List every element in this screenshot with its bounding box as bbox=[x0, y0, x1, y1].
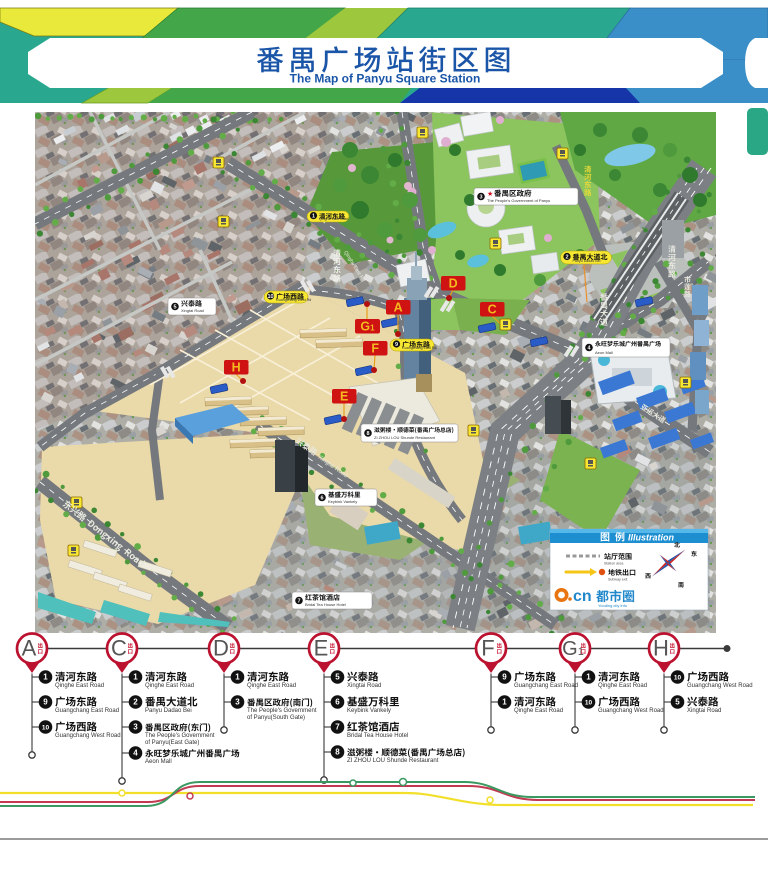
svg-text:Keybink Vankely: Keybink Vankely bbox=[328, 499, 357, 504]
svg-text:3: 3 bbox=[235, 698, 240, 707]
svg-text:Panyu Dadao Bei: Panyu Dadao Bei bbox=[145, 708, 192, 714]
svg-text:Qinghe East Road: Qinghe East Road bbox=[319, 217, 348, 221]
svg-text:Qinghe East Road: Qinghe East Road bbox=[247, 683, 296, 689]
svg-text:A: A bbox=[394, 301, 403, 315]
svg-text:10: 10 bbox=[585, 700, 593, 707]
svg-text:Panyu Dadao Bei: Panyu Dadao Bei bbox=[573, 259, 601, 263]
svg-text:7: 7 bbox=[335, 723, 340, 732]
svg-text:1: 1 bbox=[43, 673, 48, 682]
svg-text:6: 6 bbox=[320, 496, 323, 502]
svg-text:Qinghe East Road: Qinghe East Road bbox=[598, 683, 647, 689]
svg-text:Bridal Tea House Hotel: Bridal Tea House Hotel bbox=[347, 733, 408, 739]
svg-text:Illustration: Illustration bbox=[628, 533, 675, 543]
svg-text:Qinghe East Road: Qinghe East Road bbox=[145, 683, 194, 689]
svg-text:Aeon Mall: Aeon Mall bbox=[145, 759, 172, 765]
svg-text:D: D bbox=[213, 636, 229, 661]
svg-text:Guangchang East Rd: Guangchang East Rd bbox=[402, 346, 436, 350]
svg-text:1: 1 bbox=[133, 673, 138, 682]
svg-text:8: 8 bbox=[335, 748, 340, 757]
svg-text:Aeon Mall: Aeon Mall bbox=[595, 350, 613, 355]
svg-text:9: 9 bbox=[502, 673, 507, 682]
svg-text:10: 10 bbox=[674, 675, 682, 682]
svg-text:C: C bbox=[111, 636, 127, 661]
svg-text:2: 2 bbox=[133, 698, 138, 707]
svg-text:Subway exit: Subway exit bbox=[608, 578, 627, 582]
svg-text:10: 10 bbox=[267, 294, 273, 300]
svg-text:Guangchang West Road: Guangchang West Road bbox=[598, 708, 664, 714]
svg-text:C: C bbox=[488, 303, 497, 317]
svg-text:1: 1 bbox=[235, 673, 240, 682]
svg-text:Guangchang East Road: Guangchang East Road bbox=[55, 708, 119, 714]
svg-text:Guangchang West Road: Guangchang West Road bbox=[687, 683, 753, 689]
svg-text:of Panyu(East Gate): of Panyu(East Gate) bbox=[145, 740, 199, 746]
svg-text:A: A bbox=[22, 636, 37, 661]
svg-text:1: 1 bbox=[502, 698, 507, 707]
svg-text:9: 9 bbox=[43, 698, 48, 707]
svg-text:6: 6 bbox=[335, 698, 340, 707]
svg-text:5: 5 bbox=[173, 305, 176, 311]
svg-text:Xingtai Road: Xingtai Road bbox=[347, 683, 381, 689]
svg-text:Guangchang West Road: Guangchang West Road bbox=[55, 733, 121, 739]
svg-text:F: F bbox=[371, 342, 379, 356]
svg-text:H: H bbox=[232, 361, 241, 375]
svg-text:4: 4 bbox=[133, 749, 138, 758]
svg-text:1: 1 bbox=[586, 673, 591, 682]
svg-text:E: E bbox=[340, 390, 348, 404]
svg-text:The People's Government: The People's Government bbox=[145, 733, 215, 739]
svg-text:F: F bbox=[481, 636, 494, 661]
svg-text:Xingtai Road: Xingtai Road bbox=[687, 708, 721, 714]
svg-text:D: D bbox=[449, 277, 458, 291]
svg-text:1: 1 bbox=[312, 214, 315, 220]
svg-text:7: 7 bbox=[297, 599, 300, 605]
svg-text:10: 10 bbox=[42, 725, 50, 732]
svg-text:of Panyu(South Gate): of Panyu(South Gate) bbox=[247, 715, 305, 721]
svg-text:The People's Government of Pan: The People's Government of Panyu bbox=[487, 198, 550, 203]
svg-text:The Map of Panyu Square Statio: The Map of Panyu Square Station bbox=[290, 72, 481, 86]
svg-text:5: 5 bbox=[335, 673, 340, 682]
svg-text:★: ★ bbox=[487, 190, 493, 198]
svg-text:H: H bbox=[653, 636, 669, 661]
svg-text:ZI ZHOU LOU Shunde Restaurant: ZI ZHOU LOU Shunde Restaurant bbox=[374, 435, 436, 440]
svg-text:Yooding city info: Yooding city info bbox=[598, 603, 628, 608]
svg-text:Keybink Vankely: Keybink Vankely bbox=[347, 708, 391, 714]
svg-text:Station area: Station area bbox=[604, 562, 623, 566]
svg-text:3: 3 bbox=[479, 195, 482, 201]
svg-text:ZI ZHOU LOU Shunde Restaurant: ZI ZHOU LOU Shunde Restaurant bbox=[347, 758, 439, 764]
svg-text:E: E bbox=[314, 636, 329, 661]
svg-text:The People's Government: The People's Government bbox=[247, 708, 317, 714]
svg-text:8: 8 bbox=[366, 431, 369, 437]
svg-text:Qinghe East Road: Qinghe East Road bbox=[55, 683, 104, 689]
svg-text:5: 5 bbox=[675, 698, 680, 707]
svg-text:Guangchang West Rd: Guangchang West Rd bbox=[276, 298, 311, 302]
svg-text:Guangchang East Road: Guangchang East Road bbox=[514, 683, 578, 689]
svg-text:Qinghe East Road: Qinghe East Road bbox=[514, 708, 563, 714]
svg-text:Bridal Tea House Hotel: Bridal Tea House Hotel bbox=[305, 602, 346, 607]
svg-text:3: 3 bbox=[133, 723, 138, 732]
svg-text:cn: cn bbox=[573, 588, 592, 605]
svg-text:2: 2 bbox=[565, 255, 568, 261]
svg-text:9: 9 bbox=[395, 342, 398, 348]
svg-text:Xingtai Road: Xingtai Road bbox=[181, 308, 204, 313]
